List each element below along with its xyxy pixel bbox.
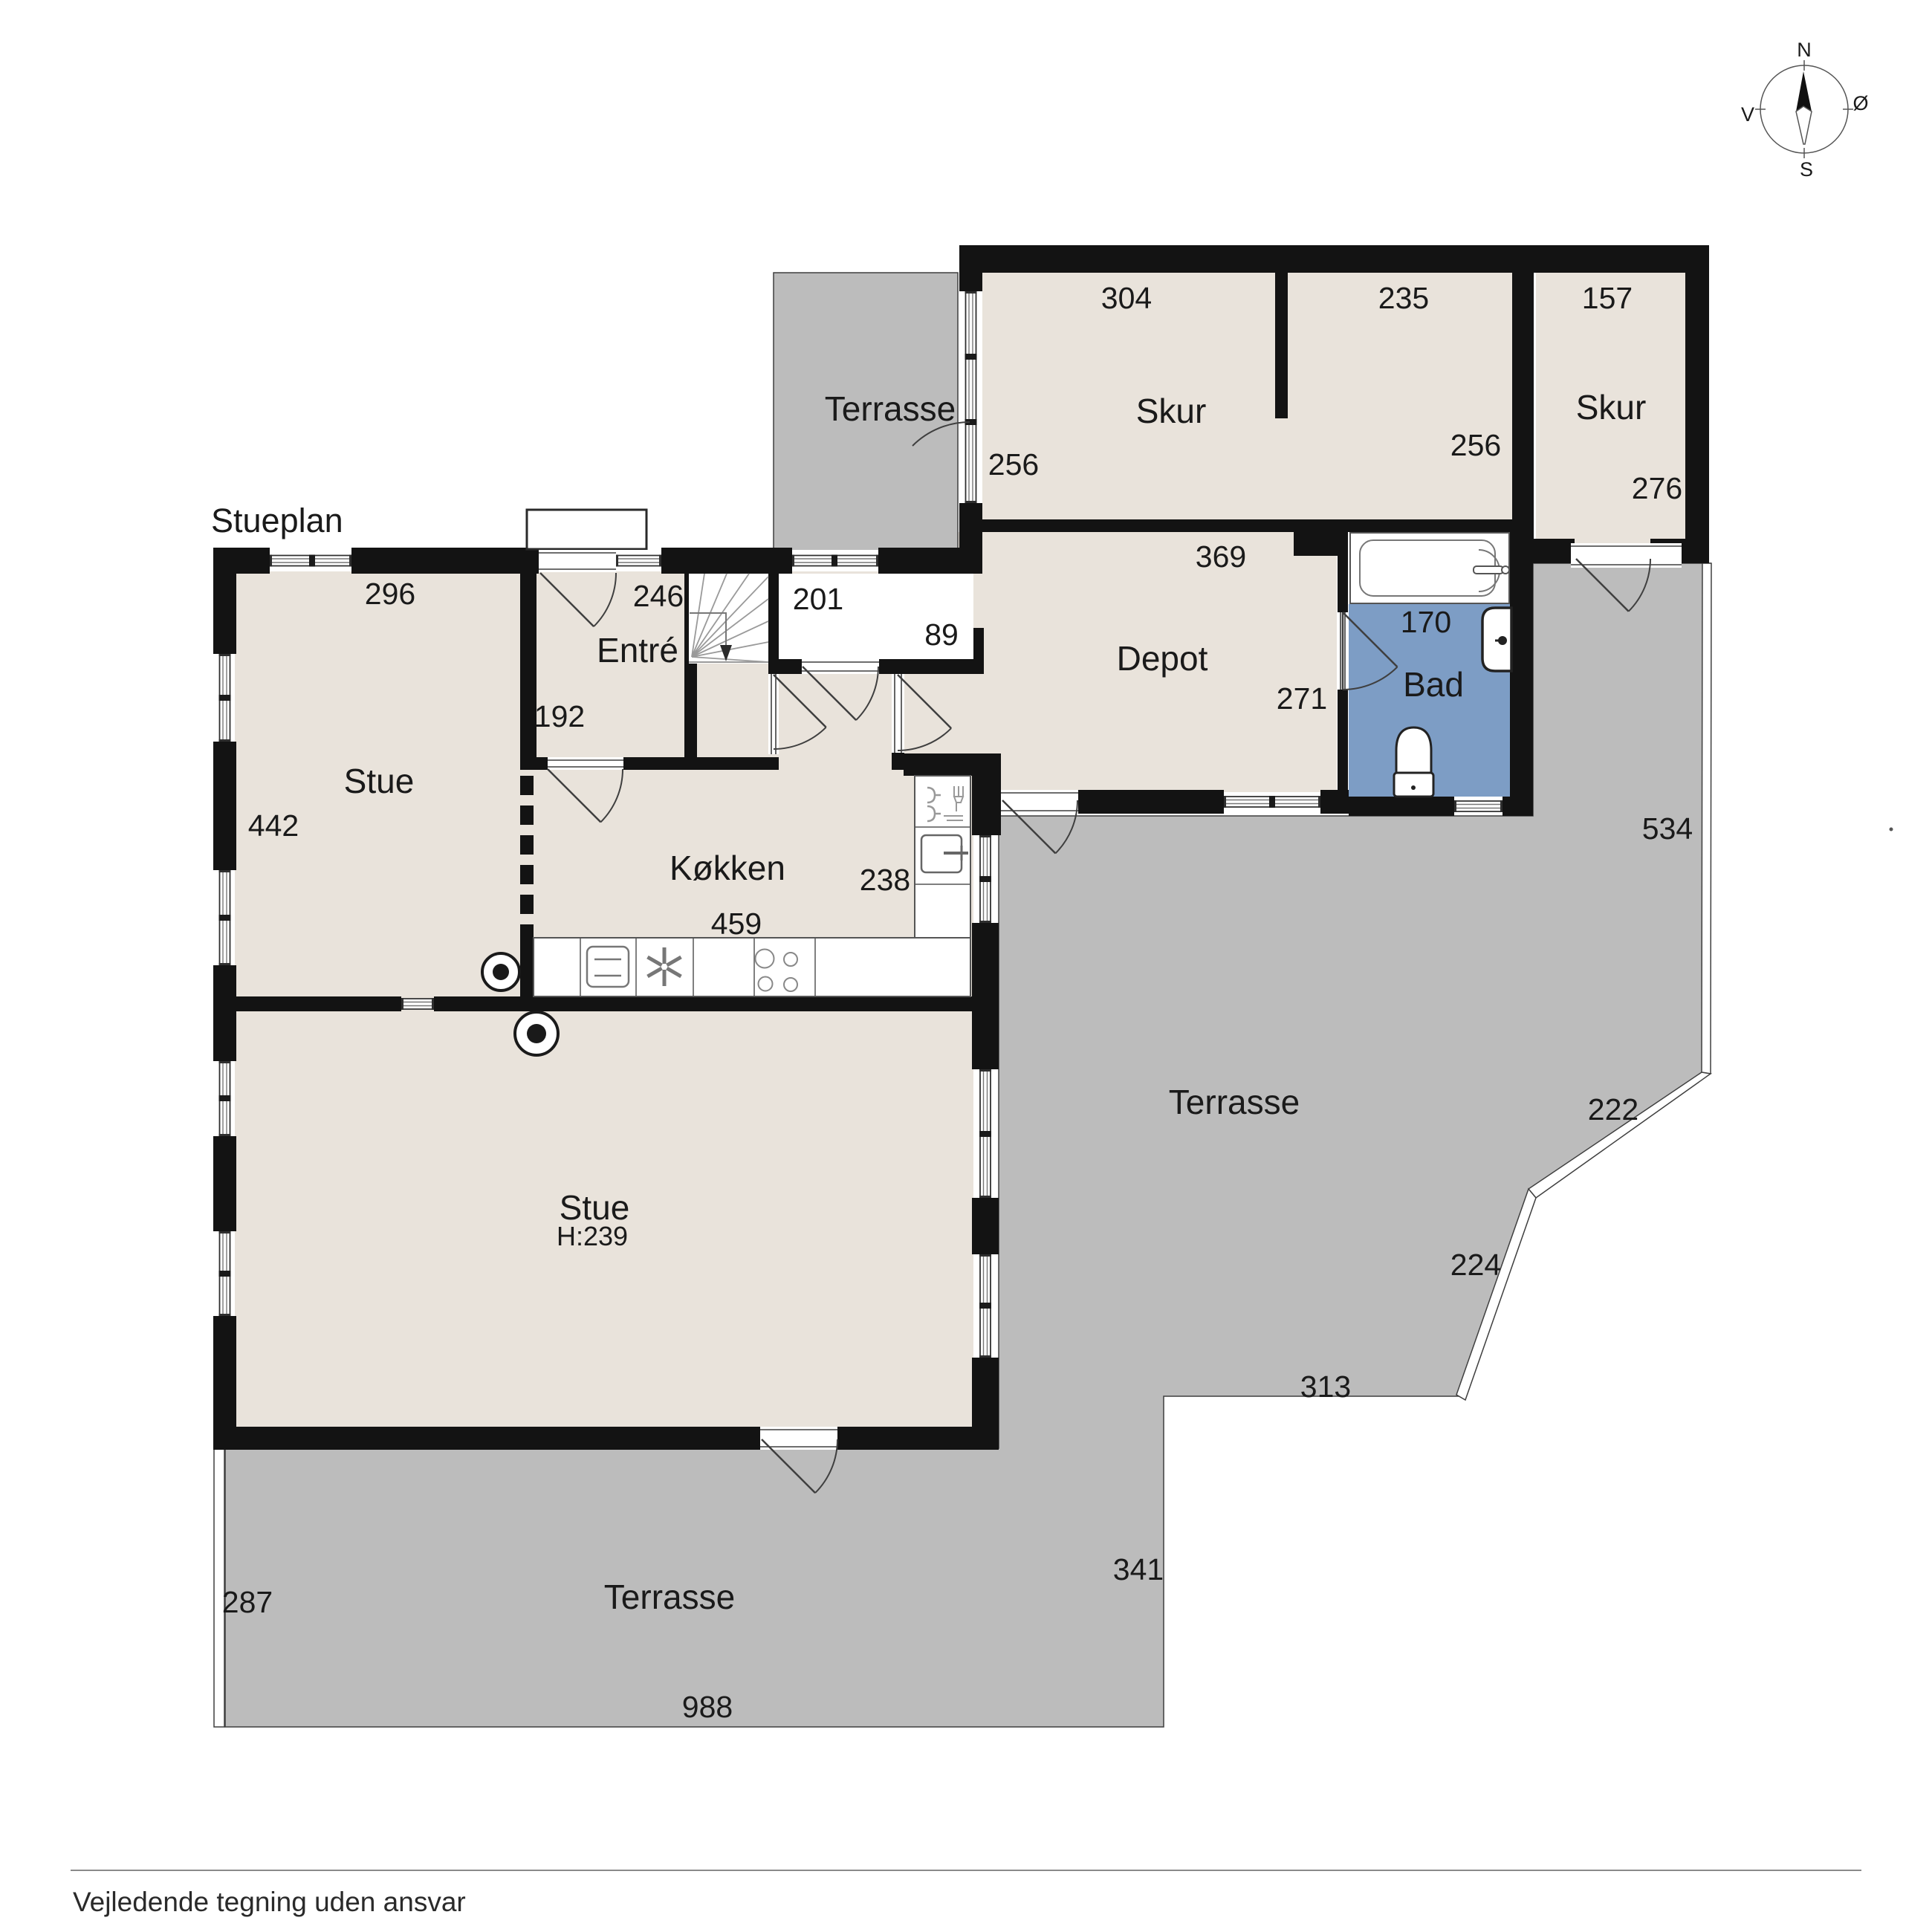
svg-text:170: 170 — [1401, 605, 1451, 639]
svg-text:Depot: Depot — [1117, 639, 1208, 678]
svg-text:313: 313 — [1300, 1369, 1351, 1404]
svg-text:Stue: Stue — [344, 762, 415, 800]
svg-text:988: 988 — [682, 1690, 733, 1724]
svg-text:256: 256 — [988, 447, 1039, 482]
svg-text:192: 192 — [534, 699, 585, 733]
svg-text:238: 238 — [860, 863, 910, 897]
svg-text:271: 271 — [1277, 681, 1327, 716]
svg-text:H:239: H:239 — [557, 1221, 628, 1251]
svg-text:442: 442 — [248, 808, 299, 843]
svg-text:235: 235 — [1378, 281, 1429, 315]
svg-text:Skur: Skur — [1136, 392, 1207, 430]
svg-text:222: 222 — [1588, 1092, 1638, 1127]
svg-text:157: 157 — [1582, 281, 1633, 315]
svg-text:89: 89 — [924, 617, 959, 652]
svg-text:V: V — [1741, 103, 1754, 126]
svg-text:287: 287 — [222, 1585, 273, 1619]
svg-text:369: 369 — [1196, 539, 1246, 574]
svg-text:304: 304 — [1101, 281, 1152, 315]
svg-text:Terrasse: Terrasse — [604, 1578, 735, 1616]
svg-text:296: 296 — [365, 577, 415, 611]
svg-text:224: 224 — [1450, 1248, 1501, 1282]
svg-text:Skur: Skur — [1576, 388, 1647, 427]
svg-text:Terrasse: Terrasse — [1169, 1083, 1300, 1121]
svg-text:256: 256 — [1450, 428, 1501, 462]
svg-text:Køkken: Køkken — [670, 849, 785, 887]
svg-text:534: 534 — [1642, 811, 1693, 846]
svg-text:Terrasse: Terrasse — [825, 389, 956, 428]
svg-text:Stueplan: Stueplan — [211, 502, 343, 539]
svg-text:459: 459 — [711, 907, 762, 941]
svg-text:S: S — [1800, 158, 1813, 181]
svg-text:201: 201 — [793, 582, 843, 616]
svg-text:341: 341 — [1113, 1552, 1164, 1586]
svg-text:Ø: Ø — [1852, 92, 1868, 114]
svg-text:N: N — [1797, 39, 1812, 61]
svg-text:276: 276 — [1632, 471, 1682, 505]
svg-text:Bad: Bad — [1403, 665, 1464, 704]
svg-text:Vejledende tegning uden ansvar: Vejledende tegning uden ansvar — [73, 1887, 466, 1917]
svg-text:Entré: Entré — [597, 631, 678, 670]
svg-text:246: 246 — [633, 579, 684, 613]
